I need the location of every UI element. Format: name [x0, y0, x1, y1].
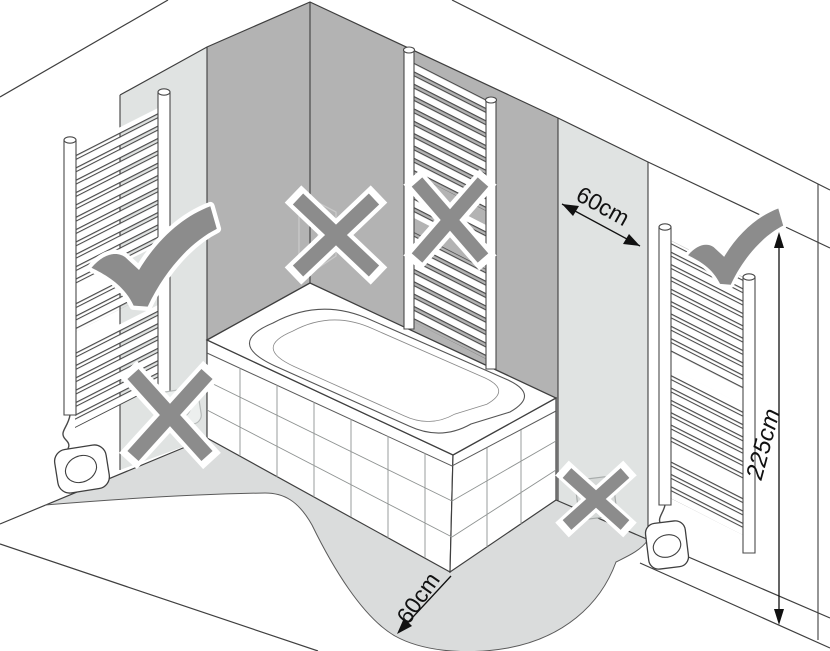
- radiator-middle-rail-cap-right: [486, 97, 497, 103]
- radiator-right-rail-cap-right: [743, 274, 755, 280]
- radiator-right-rail-cap-left: [659, 224, 671, 230]
- radiator-left-rail-cap-right: [158, 89, 170, 95]
- arrowhead-down-icon: [774, 609, 784, 625]
- radiator-left-rail-cap-left: [64, 137, 76, 143]
- wall-left-danger-panel: [207, 2, 310, 341]
- arrowhead-up-icon: [774, 232, 784, 248]
- radiator-middle-rail-cap-left: [404, 47, 415, 53]
- power-socket-right: [644, 520, 689, 571]
- diagram-stage: 60cm 60cm 225cm: [0, 0, 830, 651]
- bathroom-zones-diagram: 60cm 60cm 225cm: [0, 0, 830, 651]
- power-socket-left: [53, 443, 111, 495]
